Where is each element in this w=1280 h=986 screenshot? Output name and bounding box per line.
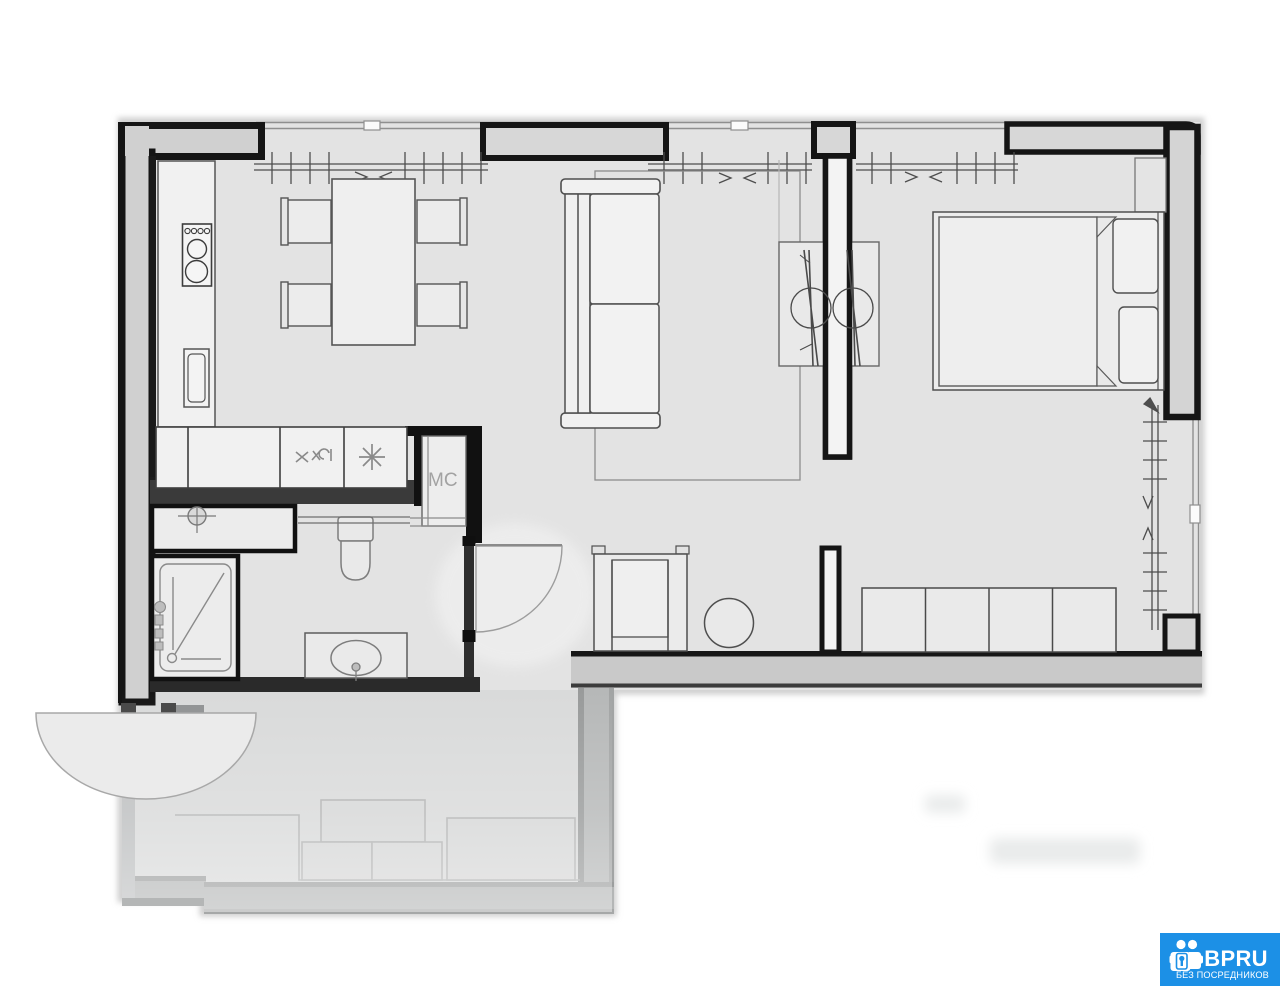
svg-text:БЕЗ ПОСРЕДНИКОВ: БЕЗ ПОСРЕДНИКОВ	[1176, 970, 1269, 980]
svg-text:BPRU: BPRU	[1204, 946, 1268, 971]
svg-text:МС: МС	[428, 470, 458, 491]
